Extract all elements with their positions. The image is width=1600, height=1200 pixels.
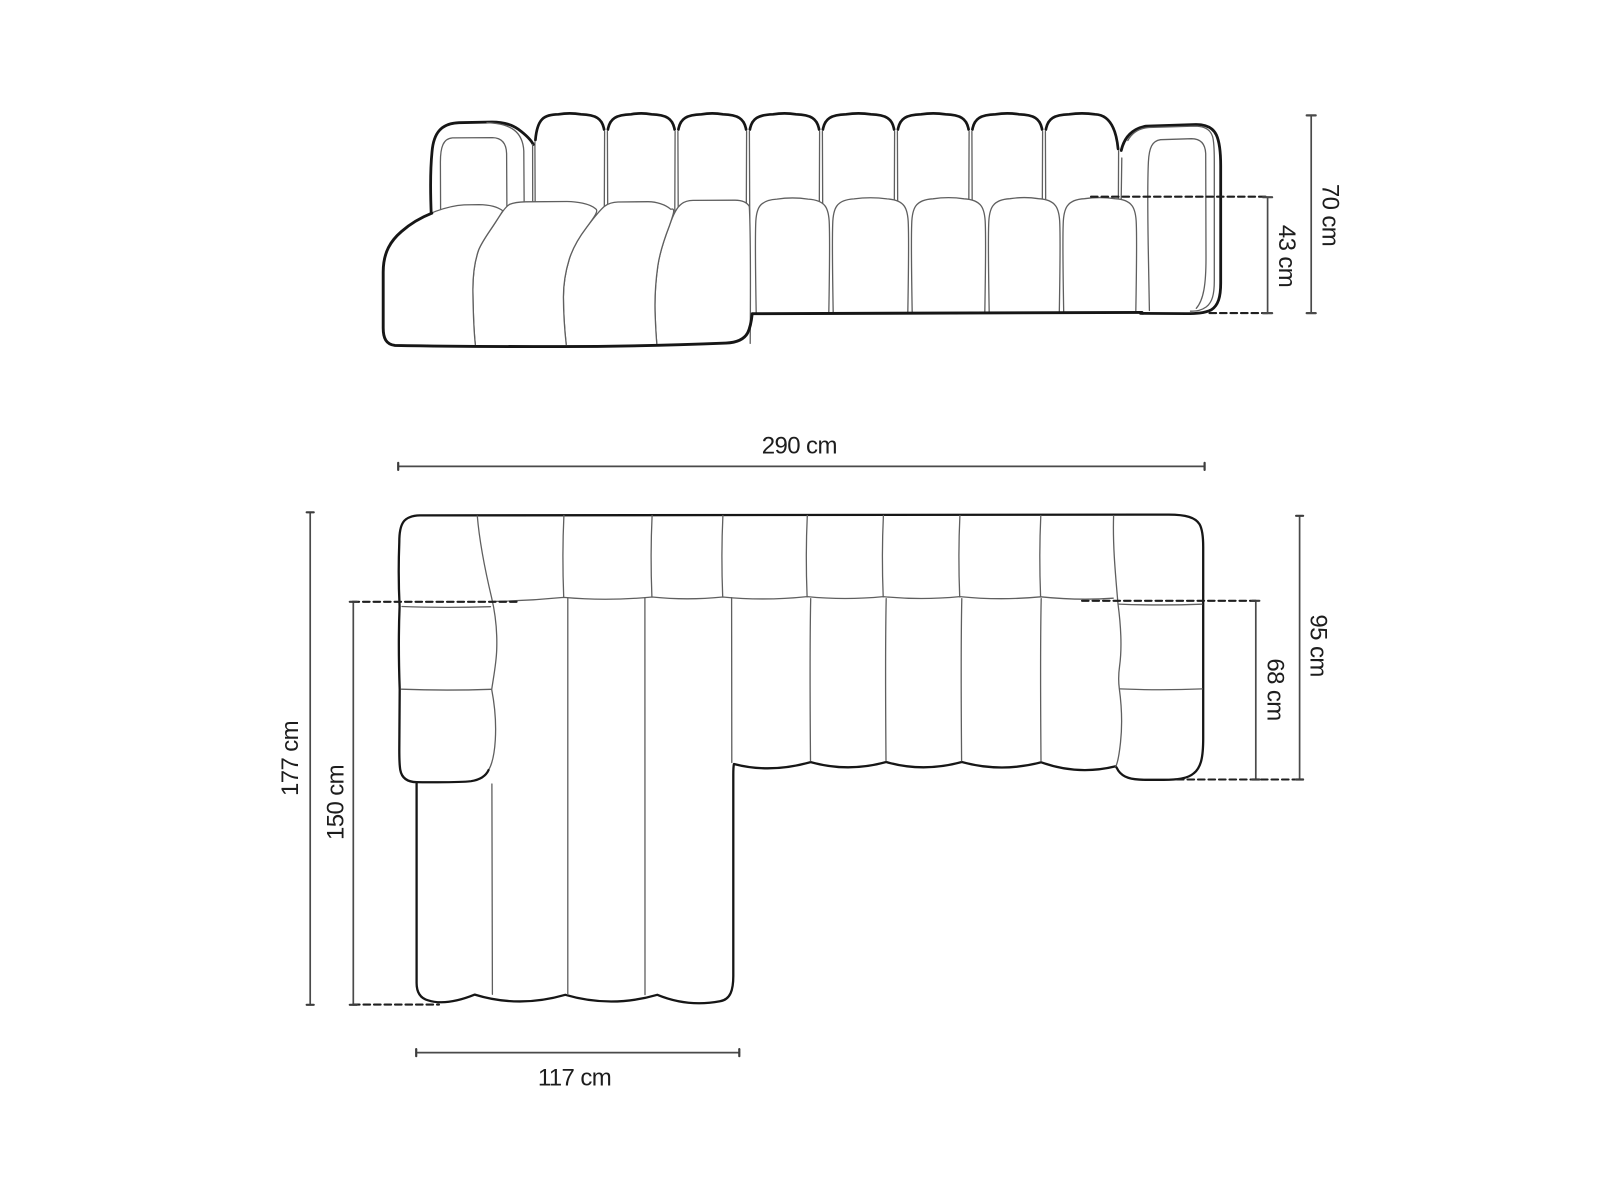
svg-text:43 cm: 43 cm <box>1273 225 1300 287</box>
svg-text:95 cm: 95 cm <box>1304 614 1331 676</box>
svg-text:70 cm: 70 cm <box>1316 184 1343 246</box>
svg-text:150 cm: 150 cm <box>323 765 350 840</box>
svg-text:177 cm: 177 cm <box>277 721 304 796</box>
svg-text:68 cm: 68 cm <box>1261 658 1288 720</box>
svg-text:290 cm: 290 cm <box>762 433 837 460</box>
svg-text:117 cm: 117 cm <box>538 1065 611 1092</box>
